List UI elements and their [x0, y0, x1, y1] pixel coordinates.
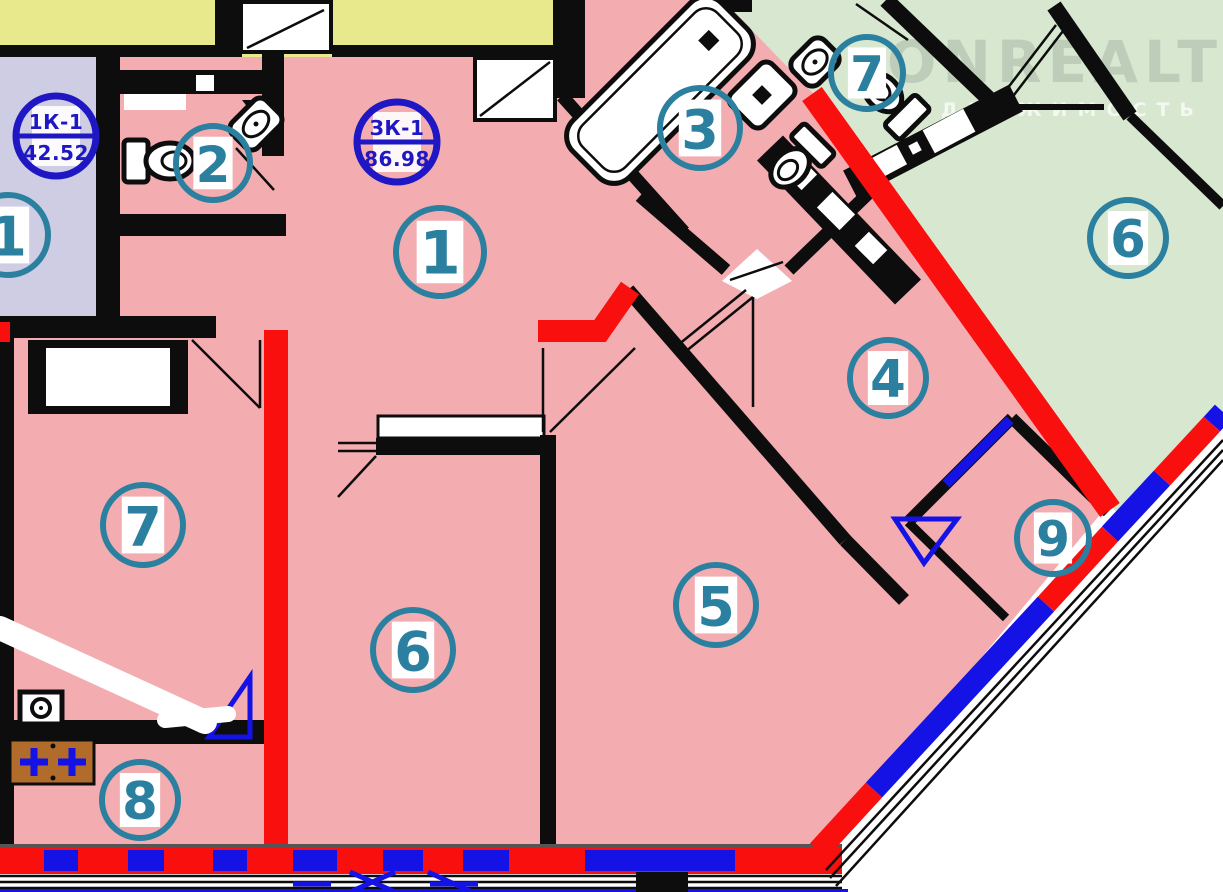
wall-opening — [196, 75, 214, 91]
washing-machine-dot — [39, 706, 43, 710]
window-segment — [463, 850, 509, 871]
window-segment — [213, 850, 247, 871]
washing-machine-icon — [20, 692, 62, 724]
window-segment — [44, 850, 78, 871]
wardrobe-inner — [46, 348, 170, 406]
shelf — [124, 94, 186, 110]
wall — [1014, 104, 1104, 110]
stamp-code: ЗК-1 — [370, 116, 425, 140]
wall — [376, 438, 546, 455]
dot — [51, 776, 56, 781]
red-wall — [0, 322, 10, 342]
window-segment — [128, 850, 164, 871]
wall — [96, 214, 286, 236]
wall — [96, 57, 120, 338]
room-number: 7 — [850, 47, 884, 103]
wall — [332, 45, 554, 57]
red-wall — [264, 330, 288, 853]
toilet-icon — [124, 140, 194, 182]
room-number: 1 — [0, 206, 27, 269]
niche — [378, 416, 544, 438]
stamp-code: 1К-1 — [29, 110, 83, 134]
room-number: 7 — [124, 496, 162, 559]
wall — [540, 435, 556, 853]
room-number: 5 — [697, 576, 735, 639]
wall — [553, 0, 585, 98]
eraser-mark — [165, 714, 228, 720]
room-number: 6 — [1110, 210, 1146, 270]
stamp-area: 42.52 — [23, 141, 89, 165]
area-stamp: ЗК-186.98 — [357, 102, 437, 182]
wall — [0, 316, 216, 338]
room-number: 1 — [419, 220, 460, 289]
room-number: 6 — [394, 621, 432, 684]
window-segment — [585, 850, 735, 871]
floor-plan-svg: ONREALT НЕДВИЖИМОСТЬ — [0, 0, 1223, 892]
window-segment — [293, 850, 337, 871]
area-stamp: 1К-142.52 — [16, 96, 96, 176]
wall-edge — [0, 844, 842, 848]
watermark-title: ONREALT — [887, 28, 1223, 96]
room-number: 9 — [1036, 512, 1070, 568]
room-number: 8 — [122, 772, 158, 832]
room-number: 3 — [681, 99, 719, 162]
room-number: 2 — [196, 136, 231, 194]
dot — [51, 744, 56, 749]
balcony-pier — [636, 872, 688, 892]
window-segment — [383, 850, 423, 871]
cabinet-icon — [10, 740, 94, 784]
room-number: 4 — [870, 350, 906, 410]
window-segment — [1212, 412, 1223, 424]
wall — [0, 45, 242, 57]
floor-plan-image: ONREALT НЕДВИЖИМОСТЬ — [0, 0, 1223, 892]
stamp-area: 86.98 — [364, 147, 430, 171]
